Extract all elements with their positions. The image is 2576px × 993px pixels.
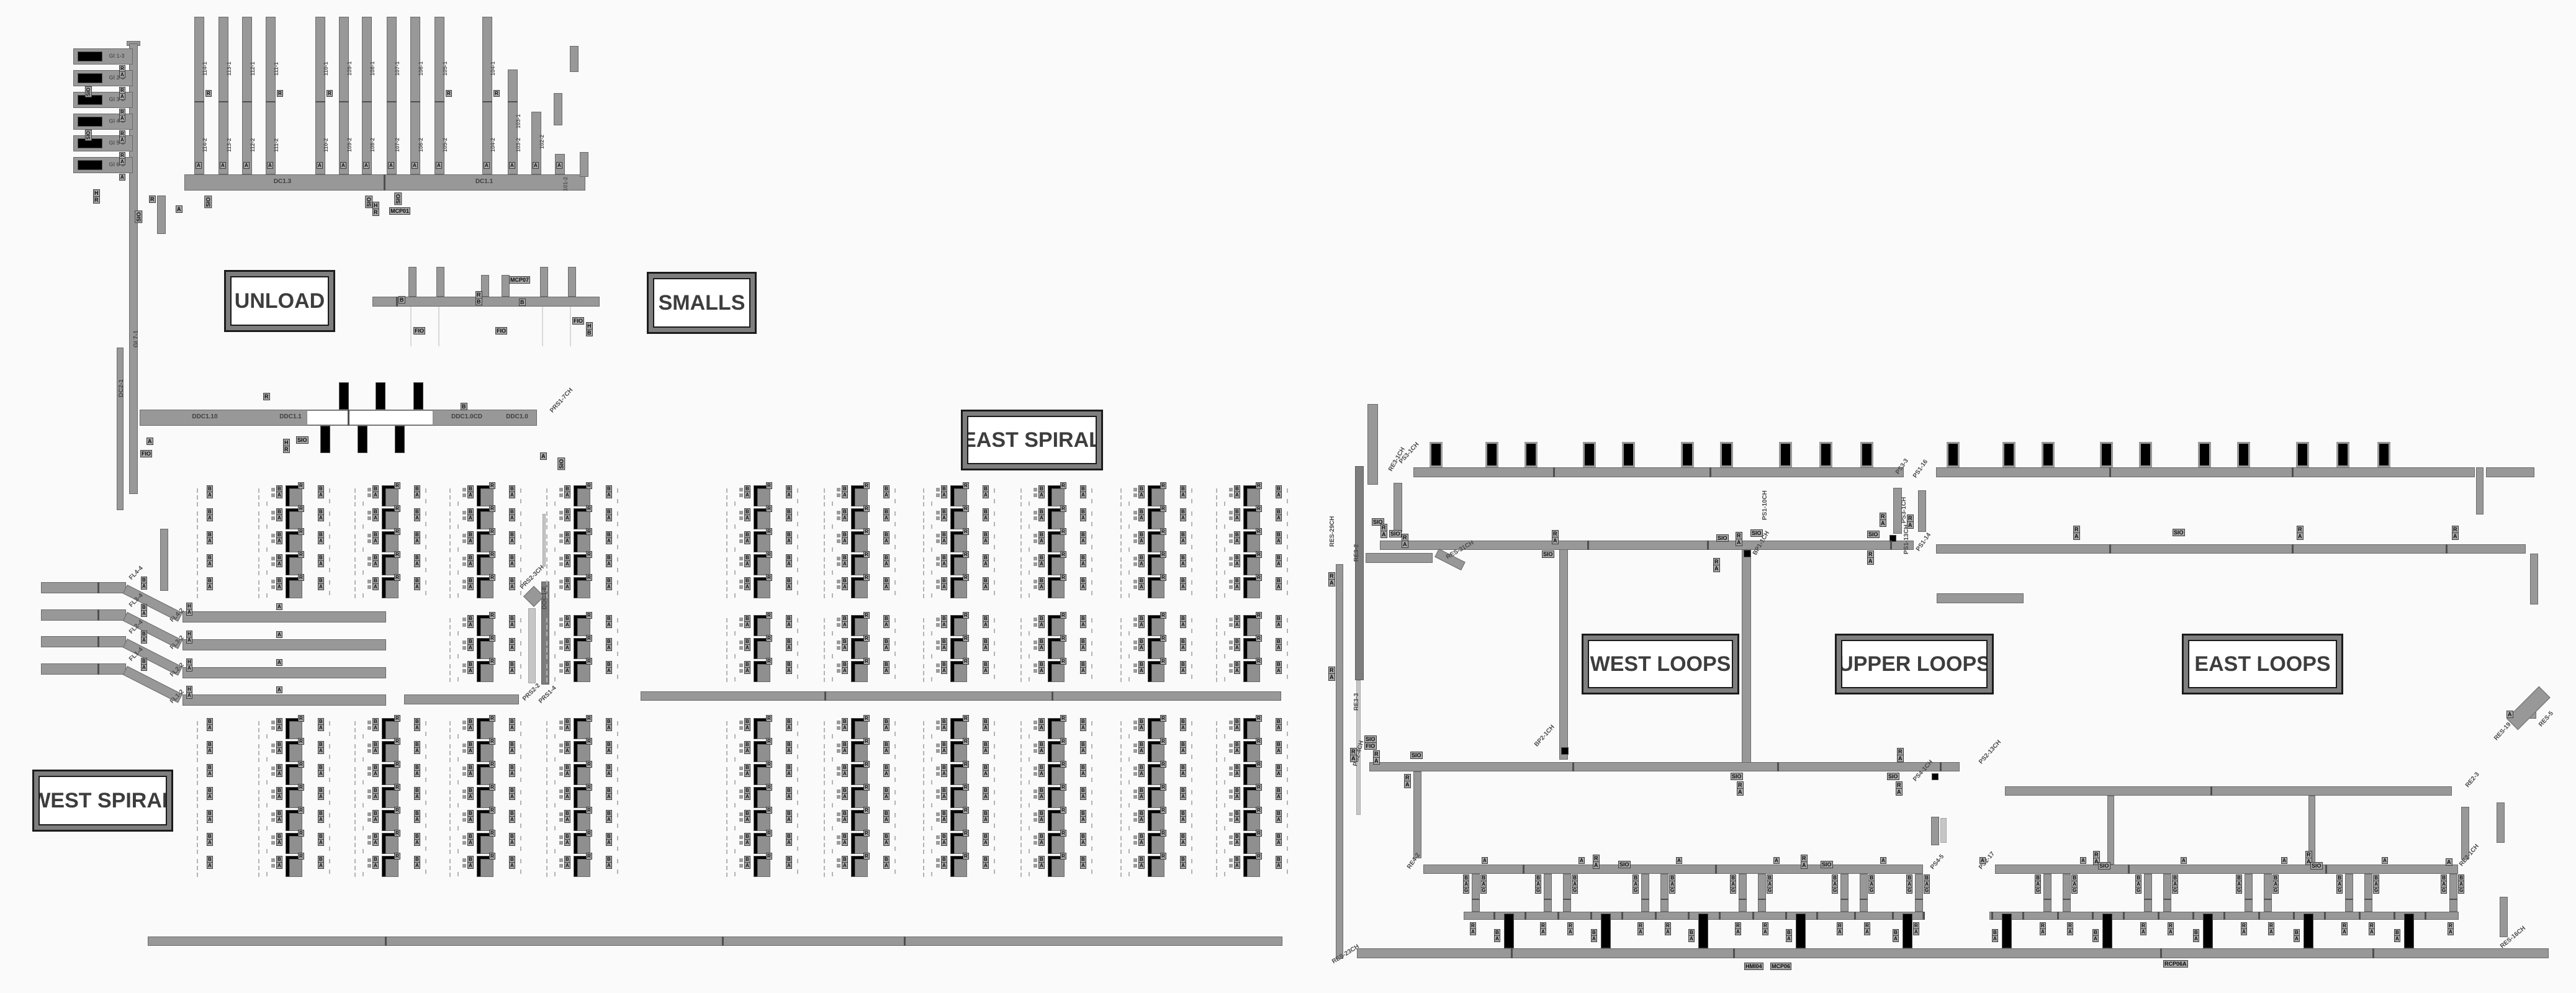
tick-mark [546,735,547,739]
tick-mark [617,618,618,622]
grid-module-body [1052,511,1065,529]
tag-text: A [1180,492,1186,498]
tag-text: R [963,574,969,581]
tag-text: R [489,574,495,581]
tag-text: SIO [1731,773,1743,780]
conveyor-bar [1918,490,1926,532]
tick-mark [824,564,825,568]
tag-text: A [276,793,282,800]
tick-mark [197,564,198,568]
loop-vertical [1472,874,1480,912]
tick-mark [363,803,364,807]
tick-mark [617,732,618,736]
tick-mark [1216,790,1217,794]
tag-text: G [2172,887,2178,894]
tag-text: A [1482,857,1488,864]
tag-text: A [2080,857,2086,864]
tag-text: R [963,658,969,665]
grid-module-body [577,813,590,831]
loop-vertical [2063,874,2071,912]
tag-text: A [318,724,324,731]
tick-mark [726,804,727,808]
tag-text: A [1328,673,1335,681]
mini-square [559,534,563,537]
tick-mark [354,594,356,598]
tick-mark [457,677,459,681]
tag-b-a: BA [509,662,515,674]
tick-mark [1091,744,1092,748]
tick-mark [520,813,521,817]
tick-mark [1020,758,1022,762]
conveyor-bar-light [543,514,546,567]
tag-text: A [1138,583,1145,590]
tag-text: A [1080,770,1086,777]
tag-text: A [983,862,989,869]
tag-text: R [586,761,592,768]
grid-module-body [855,641,868,659]
tag-text: R [586,784,592,791]
tag-r: R [149,196,156,203]
tag-text: A [1038,862,1045,869]
tag-b-a: BA [744,811,750,823]
tag-b-a: BA [1038,662,1045,674]
tag-text: A [186,609,192,616]
bar-segment-label-ddc1.0cd: DDC1.0CD [451,413,482,420]
tick-mark [923,790,924,794]
loop-vertical [2264,874,2272,912]
mini-square [367,812,371,816]
tag-text: A [786,747,792,754]
tag-r: R [489,716,495,722]
tag-sio: SIO [135,211,142,223]
tag-text: G [1633,887,1639,894]
tag-text: G [1767,887,1773,894]
tag-text: R [1256,528,1262,535]
tag-text: R [93,196,100,204]
grid-module-body [954,790,967,808]
tick-mark [734,570,736,575]
tag-text: A [983,560,989,567]
grid-module-body [855,557,868,575]
mini-square [837,557,840,560]
dock-door-west [1681,442,1694,467]
tag-text: A [1979,857,1986,864]
tag-r: R [863,807,870,814]
tick-mark [449,804,451,808]
tag-b-a: BA [1234,532,1240,544]
tag-b-a: BA [207,833,213,846]
tick-mark [726,774,727,778]
mini-square [1034,663,1037,667]
tag-r: R [963,784,969,791]
tick-mark [258,587,259,591]
rotated-label-re3-3: RE3-3 [1353,693,1360,711]
tag-b-a-g: BAG [2236,875,2242,894]
tick-mark [931,547,932,552]
tag-text: A [207,537,213,544]
mini-square [739,835,743,839]
tick-mark [894,652,896,656]
tag-text: SIO [394,193,402,205]
tick-mark [520,568,521,572]
tag-text: A [1276,644,1282,651]
tag-text: G [1669,887,1675,894]
tag-b-a: BA [606,509,612,521]
tag-b-a: BA [1276,788,1282,800]
mini-square [1034,488,1037,492]
mini-square [837,766,840,770]
tag-text: R [586,715,592,722]
tag-text: A [786,621,792,628]
tag-text: A [1080,747,1086,754]
rotated-label-res-29ch: RES-29CH [1329,516,1336,547]
tick-mark [923,781,924,785]
tick-mark [425,499,426,503]
tag-b-a: BA [318,856,324,869]
tag-text: FIO [495,327,507,335]
tick-mark [197,587,198,591]
mini-square [1229,516,1233,520]
tick-mark [1029,872,1030,876]
tag-text: A [842,537,848,544]
tag-text: A [318,770,324,777]
tag-r: R [863,762,870,768]
tag-text: A [564,621,570,628]
tick-mark [266,547,268,552]
tick-mark [520,652,521,656]
loop-vertical-joint [1660,899,1669,900]
tag-r: R [1060,762,1066,768]
tick-mark [258,813,259,817]
tick-mark [449,518,451,523]
tick-mark [894,664,896,668]
tick-mark [449,594,451,598]
crossbar-joint [2425,912,2426,920]
tick-mark [425,568,426,572]
tick-mark [1091,652,1092,656]
tick-mark [554,570,556,575]
tag-text: A [1276,492,1282,498]
tag-text: A [1402,541,1408,548]
tick-mark [1020,797,1022,801]
tag-r-a: RA [2297,526,2304,540]
lane-name-106-1: 106-1 [418,61,424,76]
tag-text: R [863,784,870,791]
tag-b-a: BA [372,578,379,590]
comb-lane-joint [410,101,420,102]
tick-mark [797,568,798,572]
tick-mark [363,849,364,853]
tag-sio: SIO [395,193,402,205]
tick-mark [449,751,451,755]
tag-text: R [298,715,304,722]
tick-mark [1020,843,1022,847]
dock-door-west [1524,442,1538,467]
tag-b-a: BA [883,578,889,590]
tag-text: A [1713,565,1720,572]
tick-mark [1020,767,1022,771]
tag-b-a: BA [207,811,213,823]
tag-r: R [1060,636,1066,642]
tag-text: A [1676,857,1682,864]
tick-mark [546,648,547,652]
tag-text: A [786,644,792,651]
tag-b-a: BA [414,811,420,823]
tag-b-a: BA [983,578,989,590]
mini-square [1034,580,1037,583]
tag-text: R [863,830,870,837]
tag-text: R [1160,807,1166,814]
tag-r-a: RA [1735,923,1741,935]
tick-mark [1128,654,1130,658]
tag-b-a: BA [372,856,379,869]
tick-mark [617,778,618,782]
conveyor-bar [2476,467,2484,514]
tag-b-a: BA [744,788,750,800]
tick-mark [520,499,521,503]
tag-text: A [1276,747,1282,754]
tag-r: R [298,807,304,814]
tag-b-a: BA [941,616,947,628]
mini-square [367,488,371,492]
mini-square [559,539,563,543]
loop-chute-black [2102,914,2112,948]
tag-text: R [863,853,870,860]
tag-text: R [1060,715,1066,722]
tag-text: A [744,793,750,800]
tag-fio: FIO [572,318,584,325]
conveyor-bar [1423,865,1923,874]
mini-square [837,858,840,862]
tick-mark [1287,824,1288,828]
tag-b-a: BA [983,555,989,567]
rotated-label-re4-2: RE4-2 [1406,852,1421,871]
mini-square [739,585,743,589]
tag-text: A [983,514,989,521]
grid-module-body [385,813,399,831]
mini-square [1133,623,1137,627]
tag-r-a: RA [2241,923,2247,935]
tag-text: A [1373,757,1380,765]
mini-square [462,818,466,822]
grid-module-body [1052,767,1065,785]
tick-mark [1191,629,1192,633]
tag-r: R [586,529,592,535]
tag-text: R [963,784,969,791]
loop-vertical [2163,874,2171,912]
tick-mark [457,501,459,506]
tag-a: A [220,163,226,169]
tick-mark [258,744,259,748]
tag-b-a: BA [1038,719,1045,731]
tick-mark [197,866,198,870]
tick-mark [546,721,547,726]
tag-text: A [883,537,889,544]
tag-r: R [394,853,400,860]
tag-mcp07: MCP07 [509,277,530,284]
tag-text: A [220,162,226,169]
tick-mark [832,849,833,853]
tag-text: G [2458,887,2464,894]
tag-b-a: BA [1992,930,1998,942]
tag-b-a: BA [1038,509,1045,521]
tag-text: R [283,446,290,453]
dock-door-west [1485,442,1498,467]
tag-text: A [941,514,947,521]
tag-b-a: BA [1180,509,1186,521]
bar-joint [1707,541,1709,550]
tag-text: R [766,830,772,837]
tick-mark [1224,501,1225,506]
tick-mark [1020,820,1022,824]
tag-text: SIO [296,436,308,444]
tag-text: A [1180,839,1186,846]
tick-mark [894,778,896,782]
tick-mark [258,511,259,516]
mini-square [559,557,563,560]
tag-text: A [372,747,379,754]
tick-mark [449,671,451,675]
lane-name-107-2: 107-2 [394,138,400,152]
tick-mark [449,721,451,726]
tick-mark [1020,850,1022,854]
rotated-label-ps2-13ch: PS2-13CH [1978,739,2002,765]
mini-square [1229,646,1233,650]
tag-text: A [2193,935,2199,942]
tick-mark [449,502,451,506]
tick-mark [520,522,521,526]
tick-mark [797,488,798,493]
tick-mark [449,774,451,778]
tick-mark [1216,648,1217,652]
tag-b-a: BA [744,833,750,846]
tick-mark [832,570,833,575]
tick-mark [824,641,825,645]
tag-text: A [388,162,394,169]
tick-mark [1216,820,1217,824]
mini-square [936,744,940,747]
tick-mark [546,873,547,877]
tick-mark [258,751,259,755]
tag-r-a: RA [2040,923,2046,935]
mini-square [1229,511,1233,514]
tick-mark [258,594,259,598]
tag-b-a: BA [1080,578,1086,590]
conveyor-bar [182,611,386,622]
mini-square [271,835,275,839]
grid-module-body [577,557,590,575]
tag-text: R [298,807,304,814]
tag-b-a: BA [883,662,889,674]
tick-mark [449,618,451,622]
tick-mark [546,813,547,817]
lane-name-103-2: 103-2 [515,138,521,152]
mini-square [271,580,275,583]
tick-mark [726,655,727,659]
tag-text: R [863,807,870,814]
tag-text: R [863,482,870,489]
tag-text: R [298,738,304,745]
tick-mark [363,780,364,784]
tag-text: A [2341,928,2348,935]
grid-module-body [1151,534,1164,552]
tag-b-a: BA [1276,578,1282,590]
tag-b-a: BA [564,509,570,521]
tag-b-a: BA [207,719,213,731]
tag-b-a: BA [1893,930,1899,942]
tag-text: R [1060,635,1066,642]
tick-mark [520,511,521,516]
conveyor-bar [1369,762,1960,771]
tag-b-a: BA [1138,719,1145,731]
tick-mark [425,580,426,585]
tag-text: A [467,492,474,498]
tag-b-a: BA [467,662,474,674]
faint-line [438,307,439,346]
tick-mark [726,557,727,562]
tag-b-a: BA [467,765,474,777]
bar-joint [1715,865,1717,874]
tag-text: R [1060,830,1066,837]
tag-b-a: BA [786,616,792,628]
bar-joint [2160,948,2162,958]
tick-mark [726,813,727,817]
tick-mark [1216,632,1217,636]
comb-lane-joint [508,101,518,102]
tag-h-a: HA [186,659,192,672]
tag-b-a: BA [1180,742,1186,754]
tag-b-a: BA [1786,930,1792,942]
tick-mark [797,675,798,679]
tick-mark [894,744,896,748]
tag-b-a: BA [1080,639,1086,651]
tick-mark [329,869,330,874]
grid-module-body [757,534,770,552]
dock-door-west [1720,442,1733,467]
grid-module-body [954,836,967,854]
tick-mark [894,522,896,526]
tick-mark [994,755,995,759]
tick-mark [923,495,924,500]
tag-r: R [489,658,495,665]
mini-square [1034,766,1037,770]
mini-square [936,772,940,776]
tick-mark [258,873,259,877]
grid-module-body [1151,618,1164,636]
tag-text: A [1567,928,1574,935]
conveyor-bar [2497,802,2505,843]
tag-text: A [1080,839,1086,846]
grid-module-body [289,767,302,785]
mini-square [271,562,275,566]
tick-mark [923,866,924,870]
tag-text: R [863,505,870,512]
mini-square [462,623,466,627]
lane-name-114-1: 114-1 [202,61,208,76]
tag-b-a: BA [467,788,474,800]
mini-square [1133,669,1137,673]
tag-text: R [489,738,495,745]
tag-b-a: BA [1234,788,1240,800]
grid-module-body [480,721,493,739]
tick-mark [797,511,798,516]
loop-vertical-joint [2245,899,2253,900]
mini-square [271,841,275,845]
tick-mark [425,813,426,817]
region-label-smalls-text: SMALLS [653,278,750,328]
mini-square [271,744,275,747]
tick-mark [1128,547,1130,552]
